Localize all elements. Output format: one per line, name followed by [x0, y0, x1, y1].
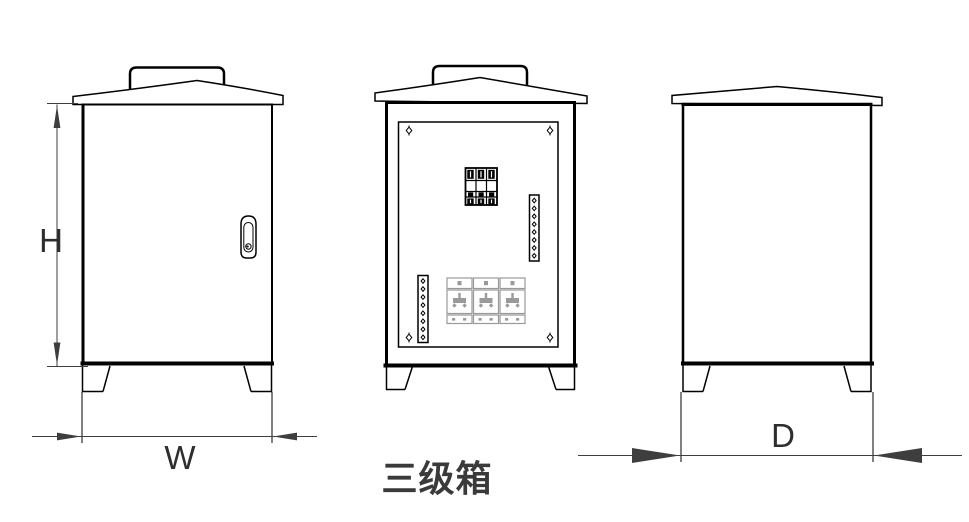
arrow-left-icon: [57, 433, 81, 441]
terminal-strip-right-icon: [530, 195, 540, 261]
rain-hood: [375, 78, 587, 104]
legs: [82, 364, 272, 392]
drawing-title: 三级箱: [381, 459, 492, 499]
width-dimension: W: [32, 433, 317, 476]
three-pole-breaker-icon: [466, 168, 498, 205]
drawing-canvas: H W: [0, 0, 969, 522]
left-side-view: [73, 68, 283, 444]
depth-label: D: [771, 417, 795, 454]
arrow-right-icon: [874, 448, 922, 463]
height-dimension: H: [39, 104, 88, 367]
rain-hood: [73, 81, 283, 105]
cabinet-body: [683, 104, 871, 364]
right-side-view: [672, 87, 882, 393]
technical-drawing: H W: [0, 0, 969, 522]
legs: [683, 364, 872, 392]
terminal-strip-left-icon: [418, 276, 428, 343]
legs: [386, 365, 575, 390]
arrow-left-icon: [632, 448, 680, 463]
width-extension-lines: [82, 392, 272, 443]
width-label: W: [164, 439, 196, 476]
door-handle-lock-icon: [241, 216, 256, 258]
front-view: [375, 66, 587, 390]
rain-hood: [672, 87, 882, 106]
height-label: H: [39, 222, 63, 259]
arrow-right-icon: [273, 433, 297, 441]
depth-dimension: D: [578, 392, 962, 463]
